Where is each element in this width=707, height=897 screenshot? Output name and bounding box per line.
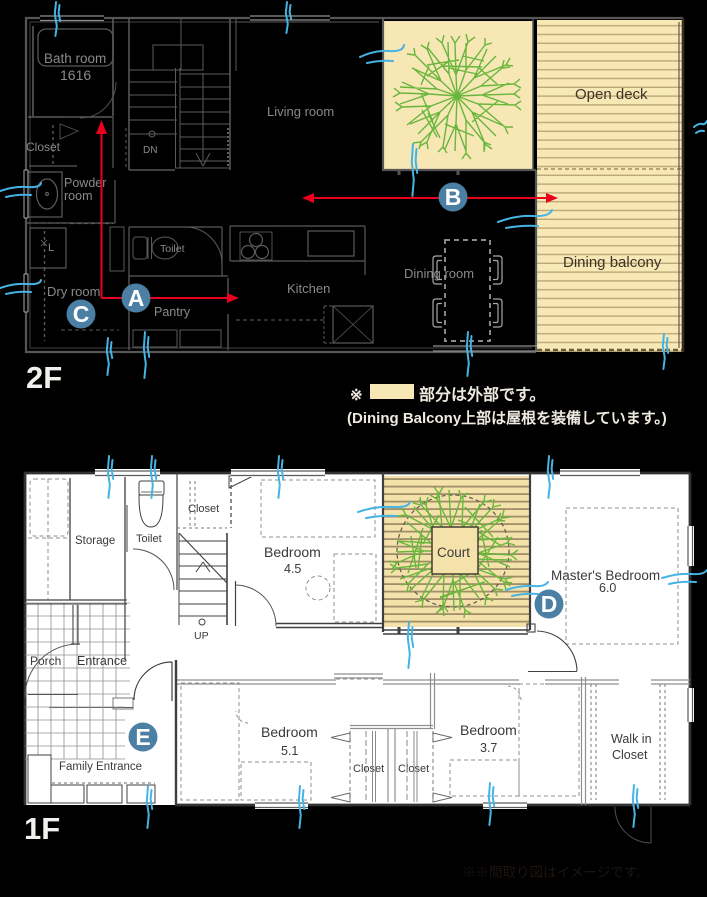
svg-text:※: ※ — [350, 387, 363, 404]
svg-text:Court: Court — [437, 545, 470, 560]
svg-text:C: C — [73, 301, 90, 327]
svg-text:Pantry: Pantry — [154, 305, 191, 319]
svg-text:A: A — [128, 285, 145, 311]
svg-text:(Dining Balcony上部は屋根を装備しています。): (Dining Balcony上部は屋根を装備しています。) — [347, 409, 667, 427]
svg-text:D: D — [541, 591, 558, 617]
svg-text:3.7: 3.7 — [480, 741, 497, 755]
svg-text:Dining room: Dining room — [404, 266, 474, 281]
svg-text:B: B — [445, 184, 462, 210]
svg-text:Storage: Storage — [75, 535, 115, 547]
svg-text:Closet: Closet — [353, 763, 384, 775]
svg-text:Dry room: Dry room — [47, 284, 100, 299]
svg-text:1616: 1616 — [60, 67, 91, 83]
svg-text:※※間取り図はイメージです。: ※※間取り図はイメージです。 — [462, 865, 649, 880]
svg-text:Bedroom: Bedroom — [261, 724, 318, 740]
svg-text:Bedroom: Bedroom — [264, 544, 321, 560]
svg-text:Closet: Closet — [612, 748, 648, 762]
svg-text:4.5: 4.5 — [284, 562, 301, 576]
svg-text:UP: UP — [194, 630, 209, 642]
svg-text:room: room — [64, 189, 92, 203]
svg-text:Toilet: Toilet — [160, 243, 185, 255]
svg-text:6.0: 6.0 — [599, 581, 616, 595]
svg-text:Dining balcony: Dining balcony — [563, 254, 662, 271]
svg-text:Bedroom: Bedroom — [460, 722, 517, 738]
svg-text:1F: 1F — [24, 811, 60, 846]
svg-text:2F: 2F — [26, 360, 62, 395]
svg-text:Powder: Powder — [64, 176, 106, 190]
svg-text:5.1: 5.1 — [281, 744, 298, 758]
svg-text:Family Entrance: Family Entrance — [59, 761, 142, 773]
svg-text:Entrance: Entrance — [77, 654, 127, 668]
svg-text:Living room: Living room — [267, 104, 334, 119]
svg-text:Open deck: Open deck — [575, 86, 648, 103]
svg-text:部分は外部です。: 部分は外部です。 — [419, 385, 545, 404]
svg-text:DN: DN — [143, 145, 157, 156]
svg-text:Kitchen: Kitchen — [287, 281, 330, 296]
svg-text:Walk in: Walk in — [611, 732, 652, 746]
svg-text:Closet: Closet — [188, 503, 219, 515]
svg-text:Bath room: Bath room — [44, 51, 106, 66]
svg-text:Toilet: Toilet — [136, 533, 162, 545]
svg-text:E: E — [135, 724, 150, 750]
svg-text:Closet: Closet — [26, 140, 61, 154]
svg-text:L: L — [48, 242, 54, 254]
